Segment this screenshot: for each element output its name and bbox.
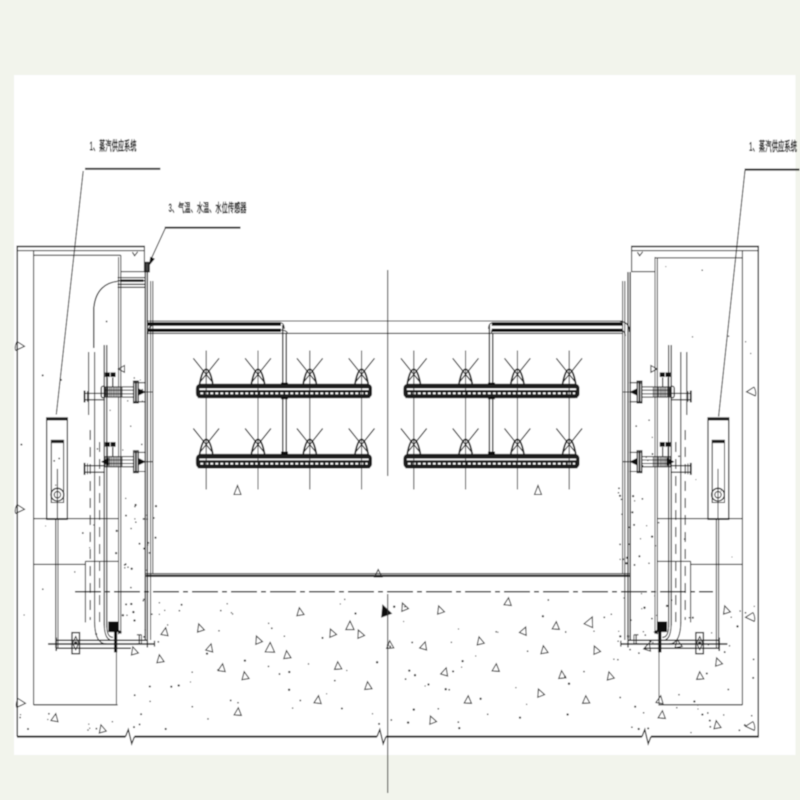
svg-text:1、蒸汽供应系统: 1、蒸汽供应系统 (749, 139, 797, 154)
svg-text:1、蒸汽供应系统: 1、蒸汽供应系统 (90, 139, 137, 154)
svg-text:3、气温、水温、水位传感器: 3、气温、水温、水位传感器 (169, 200, 248, 215)
